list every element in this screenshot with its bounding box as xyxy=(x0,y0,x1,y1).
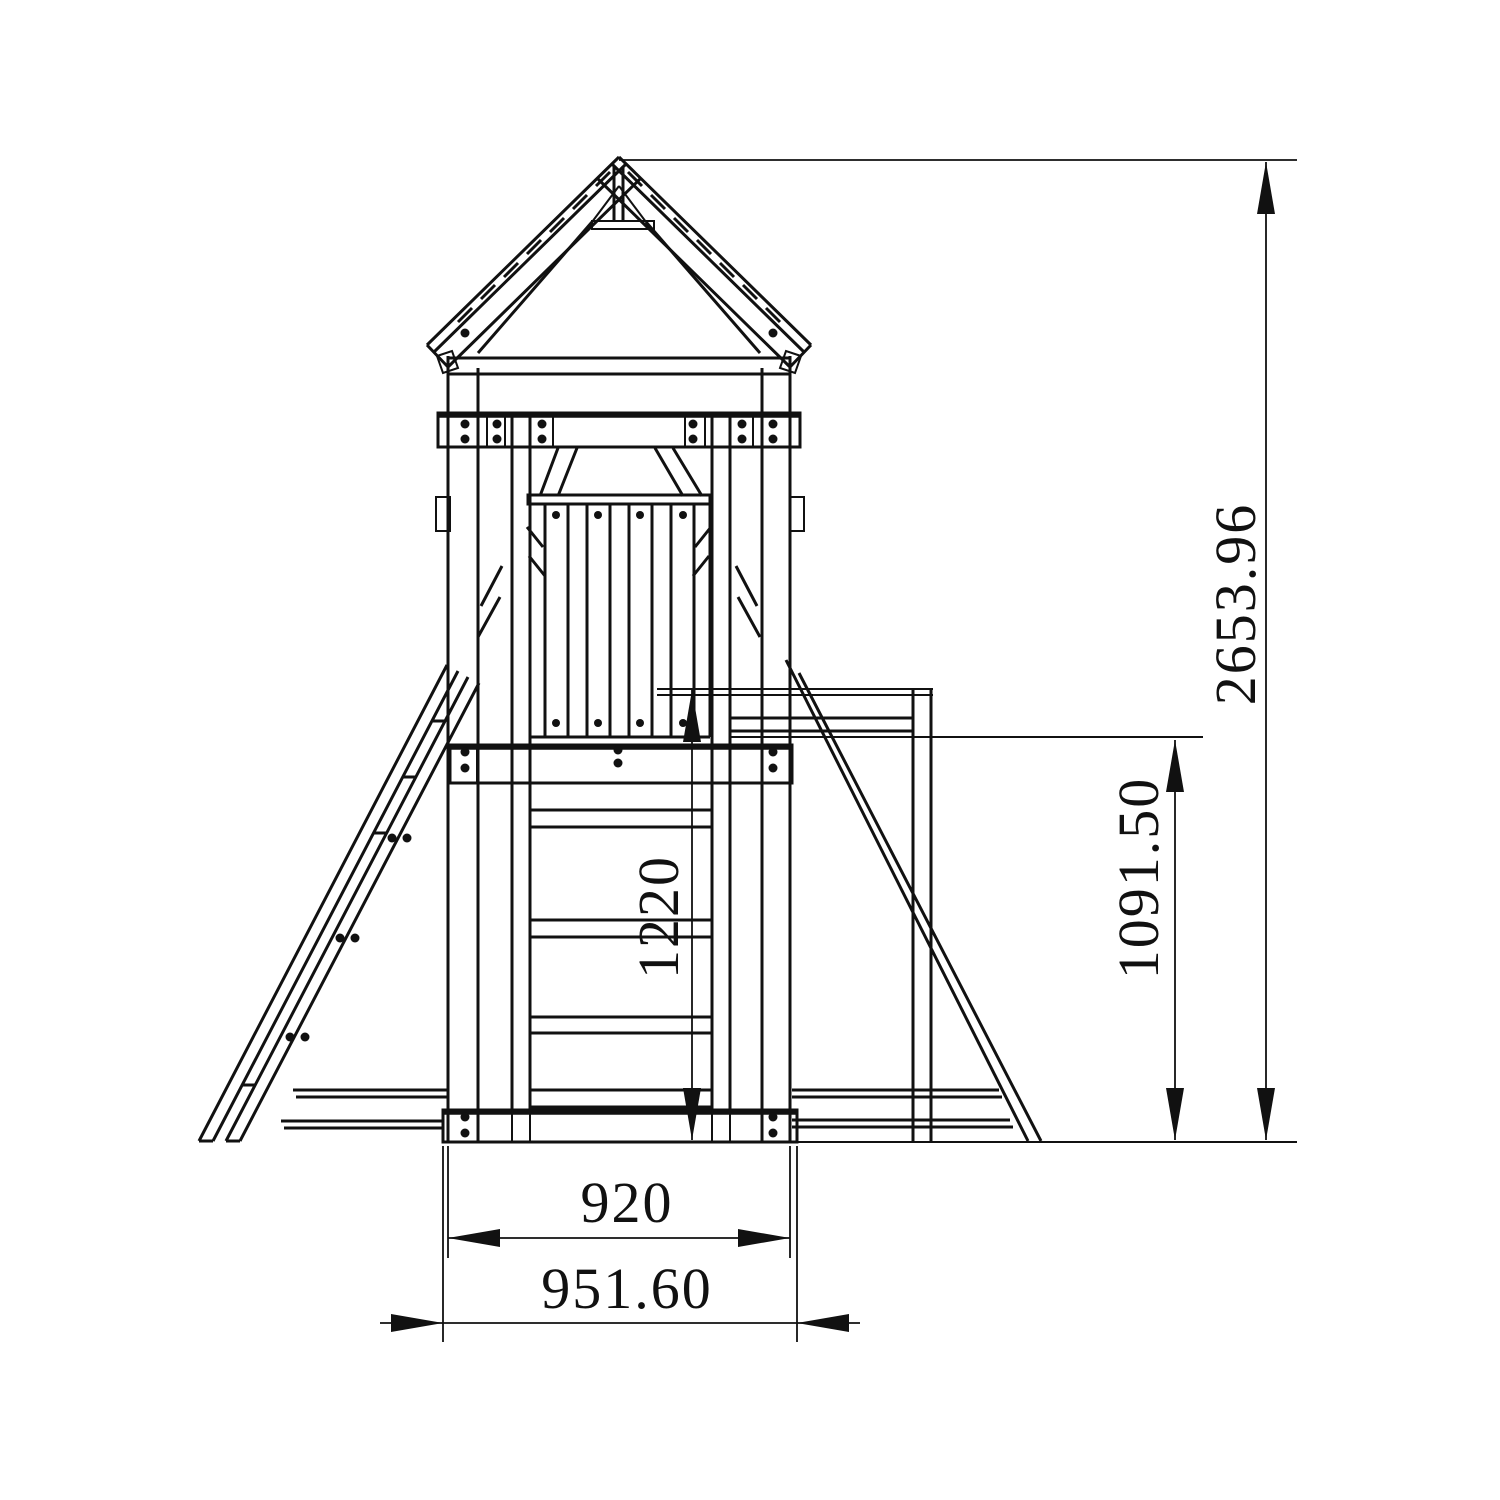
dimension-label-platform-height: 1220 xyxy=(626,855,691,979)
roof xyxy=(427,157,811,373)
ladder-rung-ends xyxy=(243,721,445,1085)
dimension-label-base-width: 951.60 xyxy=(541,1256,713,1321)
dimension-label-overall-height: 2653.96 xyxy=(1203,503,1268,706)
shingle-ticks-right xyxy=(628,172,780,322)
upper-bolt-band xyxy=(438,413,800,447)
dimension-frame-width: 920 xyxy=(448,1146,790,1258)
dimension-beam-height: 1091.50 xyxy=(1106,740,1184,1140)
rear-braces xyxy=(478,527,760,637)
tower-frame xyxy=(436,356,804,1142)
shingle-ticks-left xyxy=(458,172,610,322)
platform-band xyxy=(450,745,792,783)
side-rail-tab-right xyxy=(790,497,804,531)
dimension-label-beam-height: 1091.50 xyxy=(1106,777,1171,980)
playset-side-view-drawing: 2653.96 1091.50 1220 920 951.60 xyxy=(0,0,1500,1500)
dimension-platform-height: 1220 xyxy=(626,690,701,1140)
fence-panel xyxy=(528,495,710,737)
base-bolt-band xyxy=(443,1110,797,1142)
drawing-canvas: 2653.96 1091.50 1220 920 951.60 xyxy=(0,0,1500,1500)
dimension-label-frame-width: 920 xyxy=(581,1170,674,1235)
access-ladder xyxy=(199,665,479,1141)
